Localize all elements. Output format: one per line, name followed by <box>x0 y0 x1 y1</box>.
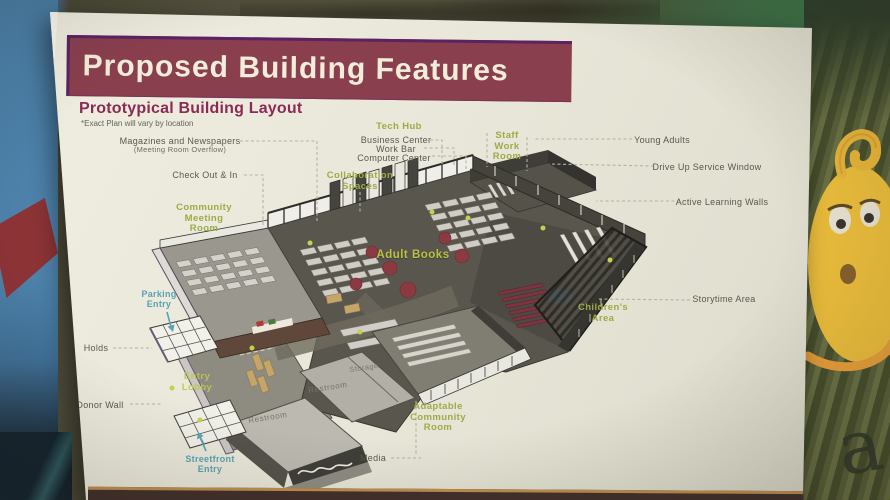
label-staff-work-room: Staff Work Room <box>493 131 522 163</box>
label-storytime: Storytime Area <box>692 294 755 304</box>
label-entry-lobby-line2: Lobby <box>182 383 213 394</box>
label-entry-lobby: Entry Lobby <box>182 372 213 393</box>
label-magazines: Magazines and Newspapers (Meeting Room O… <box>120 136 241 154</box>
poster-board-edge <box>13 10 58 500</box>
label-community-line3: Room <box>176 224 232 235</box>
label-active-learning: Active Learning Walls <box>676 197 769 207</box>
label-donor-wall: Donor Wall <box>76 400 123 410</box>
label-check-out: Check Out & In <box>172 170 237 180</box>
label-streetfront-line2: Entry <box>185 464 234 474</box>
label-parking-entry: Parking Entry <box>141 289 176 309</box>
label-community-meeting-room: Community Meeting Room <box>176 203 232 235</box>
label-parking-line2: Entry <box>141 299 176 309</box>
label-adaptable-community-room: Adaptable Community Room <box>410 402 466 434</box>
label-streetfront-line1: Streetfront <box>185 454 234 464</box>
label-childrens-area: Children's Area <box>578 303 628 324</box>
poster-wrap: Proposed Building Features Prototypical … <box>0 0 890 500</box>
photo-of-poster: a Proposed Building Features Prototypica… <box>0 0 890 500</box>
label-magazines-line2: (Meeting Room Overflow) <box>120 146 241 154</box>
label-drive-up: Drive Up Service Window <box>653 162 762 172</box>
label-collaboration-line2: Spaces <box>327 182 393 193</box>
label-streetfront-entry: Streetfront Entry <box>185 454 234 474</box>
poster-board: Proposed Building Features Prototypical … <box>0 0 890 500</box>
label-tech-hub: Tech Hub <box>376 122 422 133</box>
label-holds: Holds <box>84 343 109 353</box>
label-adaptable-line3: Room <box>410 423 466 434</box>
label-media: Media <box>360 453 386 463</box>
label-computer-center: Computer Center <box>357 153 431 163</box>
label-adult-books: Adult Books <box>376 249 449 262</box>
label-collaboration-spaces: Collaboration Spaces <box>327 171 393 192</box>
label-young-adults: Young Adults <box>634 135 690 145</box>
label-staff-line3: Room <box>493 152 522 163</box>
label-childrens-line2: Area <box>578 314 628 325</box>
label-parking-line1: Parking <box>141 289 176 299</box>
